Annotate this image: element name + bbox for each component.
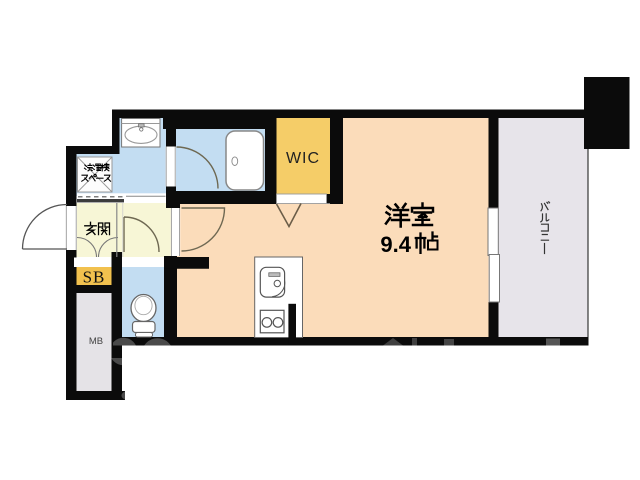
svg-text:WIC: WIC [286, 150, 320, 167]
svg-text:SB: SB [83, 268, 106, 287]
svg-text:9.4: 9.4 [380, 232, 411, 257]
svg-text:MB: MB [89, 336, 103, 347]
